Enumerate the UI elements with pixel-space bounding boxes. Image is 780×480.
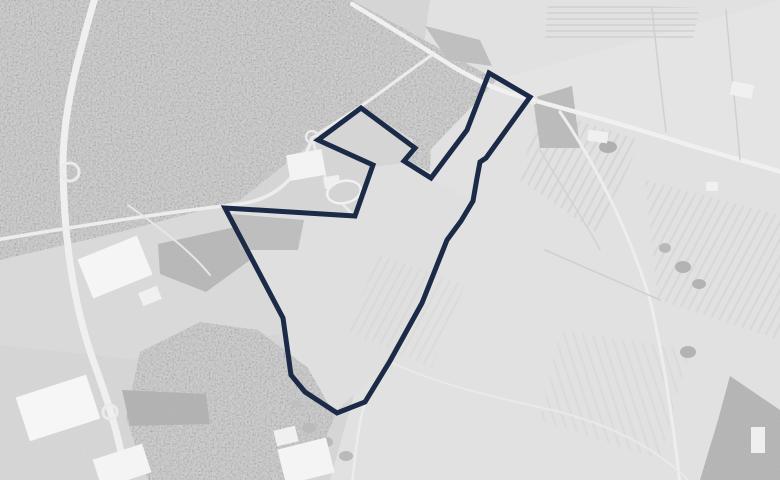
basemap-layers [0,0,780,480]
tree-clump [659,243,671,253]
tree-clump [291,400,301,408]
tree-clump [339,451,353,461]
tree-clump [302,423,316,433]
crop-rows [545,2,700,42]
tree-clump [680,346,696,358]
tree-clump [675,261,691,273]
aerial-basemap [0,0,780,480]
tree-strip [122,390,210,426]
farm-building [751,427,765,453]
pond [599,141,617,153]
tree-clump [692,279,706,289]
map-viewport [0,0,780,480]
farm-building [706,182,718,191]
